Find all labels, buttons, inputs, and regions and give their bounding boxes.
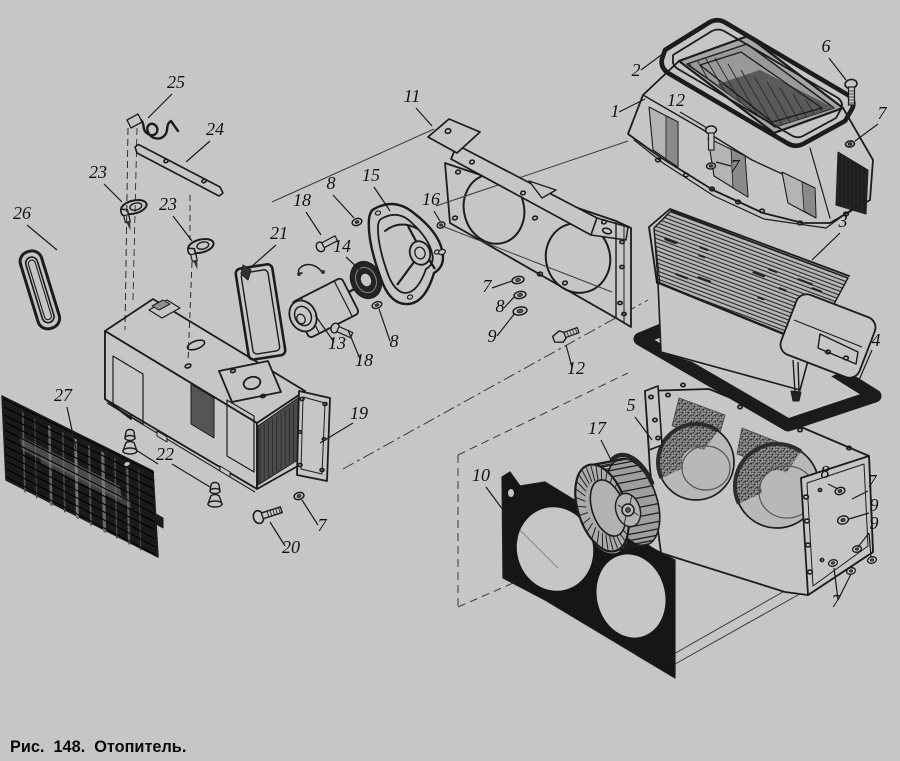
svg-text:7: 7 [832, 591, 842, 611]
svg-text:22: 22 [156, 444, 174, 464]
svg-text:23: 23 [159, 194, 177, 214]
svg-text:20: 20 [282, 537, 300, 557]
svg-text:9: 9 [870, 513, 879, 533]
svg-text:7: 7 [483, 276, 493, 296]
svg-text:8: 8 [496, 296, 505, 316]
svg-text:14: 14 [333, 236, 351, 256]
svg-text:12: 12 [567, 358, 585, 378]
svg-text:12: 12 [667, 90, 685, 110]
svg-text:9: 9 [870, 495, 879, 515]
svg-text:10: 10 [472, 465, 490, 485]
svg-text:3: 3 [838, 211, 848, 231]
svg-text:21: 21 [270, 223, 288, 243]
svg-text:9: 9 [488, 326, 497, 346]
svg-text:15: 15 [362, 165, 380, 185]
svg-text:7: 7 [878, 103, 888, 123]
svg-text:19: 19 [350, 403, 368, 423]
svg-text:1: 1 [611, 101, 620, 121]
svg-text:27: 27 [54, 385, 73, 405]
svg-text:2: 2 [632, 60, 641, 80]
svg-text:23: 23 [89, 162, 107, 182]
svg-text:26: 26 [13, 203, 31, 223]
svg-text:17: 17 [588, 418, 607, 438]
svg-text:4: 4 [872, 330, 881, 350]
svg-text:16: 16 [422, 189, 440, 209]
svg-text:8: 8 [390, 331, 399, 351]
svg-text:6: 6 [822, 36, 831, 56]
svg-text:11: 11 [404, 86, 421, 106]
svg-text:7: 7 [318, 515, 328, 535]
svg-text:7: 7 [868, 471, 878, 491]
svg-text:7: 7 [731, 156, 741, 176]
svg-text:25: 25 [167, 72, 185, 92]
svg-text:24: 24 [206, 119, 224, 139]
svg-text:8: 8 [327, 173, 336, 193]
svg-text:18: 18 [293, 190, 311, 210]
svg-text:8: 8 [821, 462, 830, 482]
svg-text:13: 13 [328, 333, 346, 353]
svg-text:Рис. 148. Отопитель.: Рис. 148. Отопитель. [10, 738, 186, 756]
svg-text:5: 5 [627, 395, 636, 415]
